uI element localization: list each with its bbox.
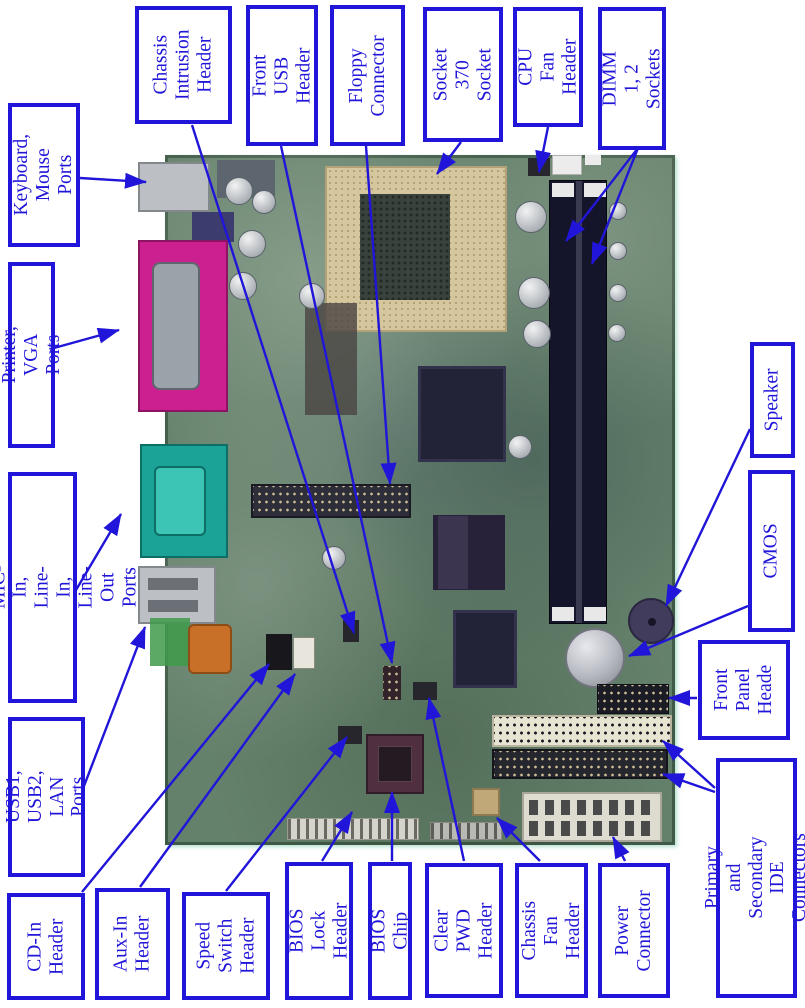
label-text: DIMM 1, 2 Sockets — [599, 48, 664, 109]
label-text: BIOS Lock Header — [286, 901, 351, 961]
label-dimm-sockets: DIMM 1, 2 Sockets — [598, 7, 666, 150]
label-socket-370-socket: Socket 370 Socket — [423, 7, 503, 142]
arrow-chassis-intrusion — [192, 125, 354, 633]
arrow-aux-in — [140, 674, 295, 887]
label-text: Speaker — [762, 369, 784, 432]
label-front-usb-header: Front USB Header — [246, 5, 318, 146]
arrow-chassis-fan — [497, 818, 540, 861]
callout-arrows-layer — [0, 0, 805, 1008]
label-com1-audio-ports: COM 1, MIC-In, Line- In, Line-Out Ports — [8, 472, 77, 703]
label-text: CPU Fan Header — [515, 36, 580, 98]
label-speed-switch-header: Speed Switch Header — [182, 892, 270, 1000]
arrow-cpu-fan — [539, 127, 548, 172]
label-chassis-fan-header: Chassis Fan Header — [515, 863, 588, 998]
label-keyboard-mouse-ports: Keyboard, Mouse Ports — [8, 103, 80, 247]
arrow-socket-370 — [437, 142, 461, 174]
label-text: USB1, USB2, LAN Ports — [3, 763, 90, 832]
label-text: Printer, VGA Ports — [0, 326, 64, 383]
label-text: Floppy Connector — [346, 35, 390, 116]
arrow-keyboard-mouse — [80, 178, 146, 182]
arrow-dimm-2 — [592, 148, 638, 264]
label-cd-in-header: CD-In Header — [7, 893, 85, 1000]
motherboard-diagram-page: Chassis Intrusion Header Front USB Heade… — [0, 0, 805, 1008]
arrow-dimm-1 — [566, 148, 638, 241]
label-text: BIOS Chip — [368, 909, 412, 953]
label-primary-secondary-ide: Primary and Secondary IDE Connectors — [716, 758, 797, 998]
label-text: Front Panel Heade — [711, 665, 776, 715]
label-cpu-fan-header: CPU Fan Header — [513, 7, 583, 127]
arrow-usb-lan — [84, 627, 145, 786]
label-chassis-intrusion-header: Chassis Intrusion Header — [135, 6, 232, 124]
label-bios-lock-header: BIOS Lock Header — [285, 862, 353, 1000]
arrow-floppy — [366, 146, 390, 484]
label-text: Primary and Secondary IDE Connectors — [702, 834, 805, 923]
arrow-ide-primary — [663, 741, 715, 788]
arrow-speaker — [666, 429, 750, 606]
label-front-panel-header: Front Panel Heade — [698, 640, 790, 740]
label-printer-vga-ports: Printer, VGA Ports — [8, 262, 55, 448]
arrow-clear-pwd — [429, 698, 464, 861]
label-text: Socket 370 Socket — [430, 38, 495, 110]
label-text: Power Connector — [612, 890, 656, 971]
label-text: Clear PWD Header — [431, 895, 496, 965]
label-floppy-connector: Floppy Connector — [330, 5, 405, 146]
label-text: Chassis Fan Header — [519, 898, 584, 963]
label-text: Keyboard, Mouse Ports — [11, 134, 76, 216]
label-power-connector: Power Connector — [598, 863, 670, 998]
label-text: Aux-In Header — [111, 916, 155, 972]
label-aux-in-header: Aux-In Header — [95, 888, 170, 1000]
arrow-ide-secondary — [663, 774, 715, 792]
arrow-front-usb — [281, 146, 392, 663]
label-clear-pwd-header: Clear PWD Header — [425, 863, 503, 998]
label-text: COM 1, MIC-In, Line- In, Line-Out Ports — [0, 557, 141, 618]
label-text: CD-In Header — [24, 918, 68, 974]
arrow-bios-lock — [322, 812, 352, 861]
label-bios-chip: BIOS Chip — [368, 862, 412, 1000]
label-text: Chassis Intrusion Header — [151, 30, 216, 100]
label-text: Speed Switch Header — [193, 918, 258, 974]
label-text: Front USB Header — [249, 43, 314, 107]
label-speaker: Speaker — [750, 342, 795, 458]
arrow-power — [613, 837, 625, 861]
label-cmos: CMOS — [748, 470, 795, 632]
arrow-cd-in — [82, 664, 269, 892]
label-text: CMOS — [761, 523, 783, 578]
label-usb-lan-ports: USB1, USB2, LAN Ports — [8, 717, 85, 877]
